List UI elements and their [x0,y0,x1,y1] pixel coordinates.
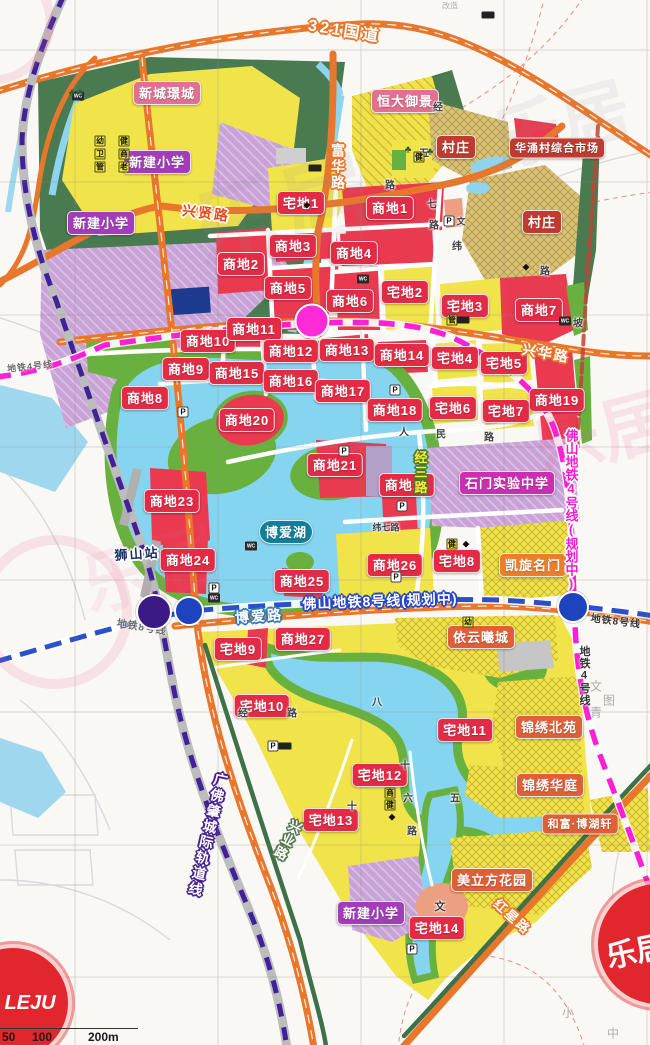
rail-station-shishan [136,594,172,630]
facility-icon: 健 [414,152,425,163]
parking-icon: P [178,407,189,418]
road-name-char: 经 [433,99,443,114]
road-name-char: 中 [607,1025,619,1042]
road-hongxing: 红星路 [490,894,536,938]
label-huayong-market: 华涌村综合市场 [509,138,605,159]
commercial-parcel-badge: 商地7 [515,298,563,322]
diamond-marker-icon: ◆ [523,262,530,273]
road-jingsan: 经三路 [411,451,430,496]
tree-icon: ♣ [77,88,84,99]
road-name-char: 五 [450,790,460,805]
facility-icon: 幼 [95,136,106,147]
restroom-icon: WC [357,275,369,284]
building-icon [309,165,322,172]
commercial-parcel-badge: 商地13 [319,338,375,362]
commercial-parcel-badge: 商地19 [529,388,585,412]
road-name-char: 改造 [442,1,458,12]
restroom-icon: WC [208,594,220,603]
road-fuhua: 富华路 [328,143,348,191]
metro8-station-west [174,596,204,626]
commercial-parcel-badge: 商地5 [264,276,312,300]
road-name-char: 文 [456,215,465,228]
facility-icon: 商 [119,149,130,160]
residential-parcel-badge: 宅地9 [214,637,262,661]
parking-icon: P [397,501,408,512]
label-hengda-yujing: 恒大御景 [371,89,439,113]
facility-icon: 卫 [95,149,106,160]
residential-parcel-badge: 宅地1 [277,191,325,215]
planning-map: 乐居 乐居 乐居 乐居 商地1商地2商地3商地4商地5商地6商地7商地8商地9商… [0,0,650,1045]
metro4-small-west: 地铁4号线 [6,357,53,375]
road-name-char: 图 [603,692,615,709]
metro8-label: 佛山地铁8号线(规划中) [302,588,458,613]
road-xingye: 兴业路 [268,816,306,865]
commercial-parcel-badge: 商地24 [160,548,216,572]
commercial-parcel-badge: 商地14 [374,343,430,367]
road-name-char: 路 [429,217,439,232]
road-name-char: 十 [347,798,357,813]
road-xingxian: 兴贤路 [181,200,231,226]
facility-icon: 健 [447,539,458,550]
building-icon [279,743,292,750]
restroom-icon: WC [245,542,257,551]
label-hefu-bohuxuan: 和富·博湖轩 [542,814,619,835]
diamond-marker-icon: ◆ [304,200,311,211]
commercial-parcel-badge: 商地16 [263,369,319,393]
residential-parcel-badge: 宅地11 [437,718,493,742]
road-name-char: 十 [400,757,410,772]
residential-parcel-badge: 宅地2 [381,280,429,304]
commercial-parcel-badge: 商地12 [263,339,319,363]
label-jinxiu-beiyuan: 锦绣北苑 [515,715,583,739]
tree-icon: ♣ [69,88,76,99]
leju-logo-cn: 乐居 [602,921,650,977]
facility-icon: 健 [119,136,130,147]
rail-guangfozhao: 广佛肇城际轨道线 [184,770,232,899]
commercial-parcel-badge: 商地3 [269,234,317,258]
labels-layer: 商地1商地2商地3商地4商地5商地6商地7商地8商地9商地10商地11商地12商… [0,0,650,1045]
road-name-char: 路 [407,823,417,838]
metro8-small-east: 地铁8号线 [590,609,642,630]
road-name-char: 路 [484,429,494,444]
residential-parcel-badge: 宅地4 [431,346,479,370]
road-name-char: 路 [385,177,395,192]
label-meilifang-garden: 美立方花园 [451,868,533,892]
commercial-parcel-badge: 商地17 [315,379,371,403]
label-boai-lake: 博爱湖 [259,520,313,544]
parking-icon: P [391,572,402,583]
road-name-char: 坡 [573,315,583,330]
commercial-parcel-badge: 商地15 [209,361,265,385]
scale-label-100: 100 [32,1030,52,1044]
metro4-station [295,304,330,339]
residential-parcel-badge: 宅地6 [429,396,477,420]
commercial-parcel-badge: 商地27 [275,627,331,651]
road-name-char: 文 [435,898,446,914]
label-yiyun-xicheng: 依云曦城 [447,625,515,649]
diamond-marker-icon: ◆ [463,539,470,550]
facility-icon: 老 [119,162,130,173]
label-xincheng-jingcheng: 新城璟城 [133,81,201,105]
building-icon [457,317,470,324]
label-village-1: 村庄 [436,135,476,159]
parking-icon: P [407,944,418,955]
parking-icon: P [268,741,279,752]
facility-icon: 幼 [463,617,474,628]
label-shimen-school: 石门实验中学 [459,471,555,495]
metro4-small-east: 地铁4号线 [576,646,592,707]
commercial-parcel-badge: 商地25 [274,569,330,593]
commercial-parcel-badge: 商地23 [144,489,200,513]
road-name-char: 文 [590,678,602,695]
road-g321: 321国道 [307,11,384,46]
leju-logo-text: LEJU [4,992,55,1015]
residential-parcel-badge: 宅地7 [482,399,530,423]
commercial-parcel-badge: 商地2 [217,252,265,276]
road-name-char: 路 [540,263,550,278]
road-name-char: 人 [399,424,409,439]
facility-icon: 健 [385,800,396,811]
label-new-primary-school-3: 新建小学 [337,901,405,925]
tree-icon: ♣ [405,145,412,156]
parking-icon: P [339,446,350,457]
residential-parcel-badge: 宅地14 [409,916,465,940]
road-boai: 博爱路 [234,604,283,627]
commercial-parcel-badge: 商地1 [366,196,414,220]
road-name-char: 纬 [452,238,462,253]
label-new-primary-school-1: 新建小学 [123,150,191,174]
road-name-char: 路 [287,705,297,720]
label-jinxiu-huating: 锦绣华庭 [516,773,584,797]
road-name-char: 六 [403,790,413,805]
scale-bar: 50 100 200m [0,1026,150,1045]
scale-bar-line [0,1028,138,1029]
parking-icon: P [444,216,455,227]
diamond-marker-icon: ◆ [389,812,396,823]
road-name-char: 八 [372,694,382,709]
commercial-parcel-badge: 商地11 [226,317,282,341]
commercial-parcel-badge: 商地9 [162,357,210,381]
facility-icon: 商 [385,788,396,799]
road-name-char: 七 [427,196,437,211]
facility-icon: 管 [95,162,106,173]
commercial-parcel-badge: 商地18 [367,398,423,422]
shishan-station-label: 狮山站 [114,542,160,564]
scale-label-200m: 200m [88,1030,119,1044]
commercial-parcel-badge: 商地21 [307,453,363,477]
road-name-char: 经 [238,705,248,720]
road-name-char: 纬七路 [372,521,399,534]
parking-icon: P [209,583,220,594]
metro8-station-east [557,591,589,623]
restroom-icon: WC [559,317,571,326]
building-icon [482,12,495,19]
tree-icon: ♣ [427,147,434,158]
commercial-parcel-badge: 商地4 [330,241,378,265]
scale-label-50: 50 [2,1030,15,1044]
label-village-2: 村庄 [522,210,562,234]
residential-parcel-badge: 宅地8 [433,549,481,573]
road-name-char: 青 [590,704,602,721]
road-name-char: 民 [436,426,446,441]
commercial-parcel-badge: 商地20 [219,408,275,432]
parking-icon: P [390,385,401,396]
metro4-label: 佛山地铁4号线(规划中) [562,429,581,591]
commercial-parcel-badge: 商地6 [326,289,374,313]
label-new-primary-school-2: 新建小学 [67,211,135,235]
commercial-parcel-badge: 商地8 [121,386,169,410]
label-kaixuan-mingmen: 凯旋名门 [499,553,567,577]
road-xinghua: 兴华路 [521,339,572,367]
road-name-char: 小 [562,1004,574,1021]
